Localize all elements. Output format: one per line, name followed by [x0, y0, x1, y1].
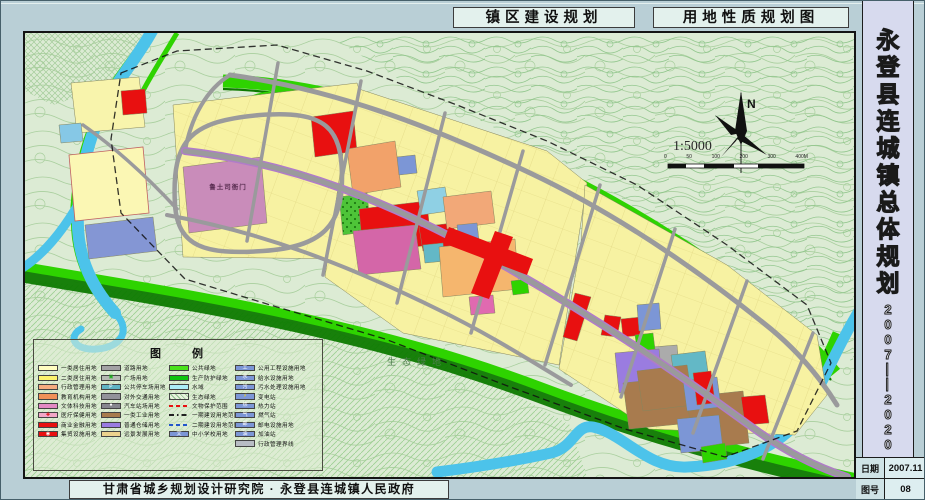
legend-swatch: 文	[169, 431, 189, 437]
legend-swatch: 水	[235, 375, 255, 381]
legend-swatch: 热	[235, 403, 255, 409]
info-row: 日期2007.11	[856, 458, 925, 479]
historic-site-label: 鲁土司衙门	[189, 181, 267, 191]
legend-item-label: 生产防护绿地	[192, 374, 228, 382]
legend-item-label: 商业金融用地	[61, 421, 97, 429]
legend-columns: 一类居住用地二类居住用地行政管理用地教育机构用地文体科技用地✚医疗保健用地商业金…	[38, 365, 319, 447]
legend-swatch	[169, 384, 189, 390]
legend-item-label: 文体科技用地	[61, 402, 97, 410]
vertical-year-char: 0	[863, 317, 913, 332]
legend-swatch-glyph: ▣	[109, 375, 114, 380]
legend-item-label: 汽车站场用地	[124, 402, 160, 410]
legend-item-label: 集贸设施用地	[61, 430, 97, 438]
vertical-title: 永登县连城镇总体规划	[863, 27, 913, 297]
legend-swatch: ▣	[101, 375, 121, 381]
credit-box: 甘肃省城乡规划设计研究院 · 永登县连城镇人民政府	[69, 480, 449, 499]
legend-item: 一类居住用地	[38, 365, 97, 372]
vertical-title-char: 城	[863, 135, 913, 162]
vertical-title-char: 规	[863, 243, 913, 270]
legend-item-label: 加油站	[258, 430, 276, 438]
legend-item: 水给水设施用地	[235, 374, 319, 381]
legend-item-label: 变电站	[258, 393, 276, 401]
legend-swatch	[101, 365, 121, 371]
scale-tick-labels: 050100200300400M	[664, 154, 808, 160]
top-divider	[1, 3, 924, 4]
legend-item-label: 一类工业用地	[124, 411, 160, 419]
legend-swatch	[38, 422, 58, 428]
legend-swatch: 污	[235, 384, 255, 390]
legend-title: 图 例	[48, 345, 319, 361]
legend-item: 热热力站	[235, 403, 319, 410]
vertical-year-char: 0	[863, 437, 913, 452]
legend-item: ◉集贸设施用地	[38, 431, 97, 438]
scale-text: 1:5000	[673, 139, 712, 155]
legend-swatch	[101, 393, 121, 399]
scale-tick: 300	[767, 154, 775, 160]
legend-swatch: P	[101, 384, 121, 390]
legend-item-label: 行政管理用地	[61, 383, 97, 391]
legend-swatch: ⚡	[235, 393, 255, 399]
legend-column: 道路用地▣广场用地P公共停车场用地对外交通用地●汽车站场用地一类工业用地普通仓储…	[101, 365, 165, 447]
vertical-years: 2007——2020	[863, 302, 913, 452]
legend-item: 生态绿地	[169, 393, 231, 400]
legend-item: P公共停车场用地	[101, 384, 165, 391]
legend-swatch	[169, 424, 189, 426]
info-label: 日期	[856, 458, 885, 478]
scale-tick: 400M	[795, 154, 808, 160]
legend-swatch	[38, 375, 58, 381]
legend-item: 公共绿地	[169, 365, 231, 372]
scale-tick: 200	[740, 154, 748, 160]
legend-item: 文体科技用地	[38, 403, 97, 410]
legend-item: 文中小学校用地	[169, 431, 231, 438]
legend-item-label: 广场用地	[124, 374, 148, 382]
legend-item-label: 一类居住用地	[61, 364, 97, 372]
legend-item-label: 教育机构用地	[61, 393, 97, 401]
legend-item-label: 远景发展用地	[124, 430, 160, 438]
legend-item-label: 生态绿地	[192, 393, 216, 401]
legend-swatch: ●	[101, 403, 121, 409]
legend-item: 油加油站	[235, 431, 319, 438]
right-sidebar: 永登县连城镇总体规划 2007——2020 日期2007.11图号08	[856, 1, 925, 500]
legend-swatch-glyph: 气	[242, 413, 247, 418]
legend-swatch-glyph: 热	[242, 403, 247, 408]
legend-item: ▣广场用地	[101, 374, 165, 381]
legend-item: 工公用工程设施用地	[235, 365, 319, 372]
legend-item-label: 公共绿地	[192, 364, 216, 372]
info-value: 2007.11	[885, 458, 925, 478]
legend-swatch	[101, 412, 121, 418]
legend-item: 道路用地	[101, 365, 165, 372]
scale-bar	[668, 164, 804, 168]
vertical-title-char: 总	[863, 189, 913, 216]
vertical-title-char: 连	[863, 108, 913, 135]
legend-item-label: 道路用地	[124, 364, 148, 372]
vertical-title-char: 镇	[863, 162, 913, 189]
legend-swatch	[38, 393, 58, 399]
legend-item-label: 燃气站	[258, 411, 276, 419]
legend-item: 教育机构用地	[38, 393, 97, 400]
legend-item: 污污水处理设施用地	[235, 384, 319, 391]
legend-column: 工公用工程设施用地水给水设施用地污污水处理设施用地⚡变电站热热力站气燃气站邮邮电…	[235, 365, 319, 447]
legend-item: 生产防护绿地	[169, 374, 231, 381]
legend-swatch	[38, 365, 58, 371]
legend-item: 文物保护范围	[169, 403, 231, 410]
legend-swatch	[38, 384, 58, 390]
legend-swatch-glyph: ✚	[46, 413, 50, 418]
legend-swatch-glyph: 污	[242, 385, 247, 390]
vertical-year-char: —	[881, 360, 896, 410]
vertical-title-char: 划	[863, 270, 913, 297]
legend-item-label: 邮电设施用地	[258, 421, 294, 429]
legend-swatch	[38, 403, 58, 409]
scale-tick: 100	[712, 154, 720, 160]
scale-tick: 50	[686, 154, 692, 160]
drawing-title-strip: 永登县连城镇总体规划 2007——2020	[862, 1, 914, 457]
legend-swatch-glyph: ●	[109, 403, 112, 408]
drawing-info-table: 日期2007.11图号08	[856, 457, 925, 500]
legend-item-label: 水域	[192, 383, 204, 391]
legend-swatch-glyph: ◉	[46, 432, 50, 437]
info-label: 图号	[856, 479, 885, 499]
legend-item: 行政管理用地	[38, 384, 97, 391]
legend-item-label: 热力站	[258, 402, 276, 410]
legend-item-label: 公共停车场用地	[124, 383, 166, 391]
info-value: 08	[885, 479, 925, 499]
legend-item: 二类居住用地	[38, 374, 97, 381]
legend-swatch: 油	[235, 431, 255, 437]
vertical-title-char: 永	[863, 27, 913, 54]
legend-swatch	[101, 431, 121, 437]
planning-map-panel: 鲁土司衙门 生态绿地 N 1:5000 050100200300400M 图 例…	[23, 31, 856, 479]
legend-swatch	[101, 422, 121, 428]
legend-item-label: 公用工程设施用地	[258, 364, 306, 372]
legend-item: ✚医疗保健用地	[38, 412, 97, 419]
info-row: 图号08	[856, 479, 925, 500]
vertical-title-char: 体	[863, 216, 913, 243]
legend-item-label: 二类居住用地	[61, 374, 97, 382]
scale-tick: 0	[664, 154, 667, 160]
legend-item: ●汽车站场用地	[101, 403, 165, 410]
legend-swatch-glyph: P	[109, 385, 112, 390]
page: 镇区建设规划 用地性质规划图	[0, 0, 925, 500]
legend-item: 普通仓储用地	[101, 421, 165, 428]
legend-item-label: 医疗保健用地	[61, 411, 97, 419]
legend-item-label: 二期建设用地范围	[192, 421, 240, 429]
legend-item: 水域	[169, 384, 231, 391]
legend-swatch-glyph: 邮	[242, 422, 247, 427]
legend-item-label: 对外交通用地	[124, 393, 160, 401]
legend-swatch	[235, 440, 255, 446]
legend-item: 二期建设用地范围	[169, 421, 231, 428]
legend-item: 邮邮电设施用地	[235, 421, 319, 428]
page-title-box-2: 用地性质规划图	[653, 7, 849, 28]
legend-swatch-glyph: 文	[176, 432, 181, 437]
legend-item: 行政管理界线	[235, 440, 319, 447]
legend-item-label: 一期建设用地范围	[192, 411, 240, 419]
legend-swatch-glyph: 水	[242, 375, 247, 380]
vertical-year-char: 2	[863, 422, 913, 437]
legend-swatch: 气	[235, 412, 255, 418]
legend-swatch	[169, 365, 189, 371]
legend-column: 公共绿地生产防护绿地水域生态绿地文物保护范围一期建设用地范围二期建设用地范围文中…	[169, 365, 231, 447]
legend-item: ⚡变电站	[235, 393, 319, 400]
legend-item-label: 普通仓储用地	[124, 421, 160, 429]
legend-swatch	[169, 414, 189, 416]
legend-item-label: 污水处理设施用地	[258, 383, 306, 391]
legend-item: 远景发展用地	[101, 431, 165, 438]
legend-swatch: 邮	[235, 422, 255, 428]
legend-item: 一类工业用地	[101, 412, 165, 419]
legend-swatch	[169, 375, 189, 381]
vertical-title-char: 县	[863, 81, 913, 108]
vertical-year-char: 2	[863, 302, 913, 317]
legend-swatch-glyph: 工	[242, 366, 247, 371]
legend-swatch	[169, 393, 189, 399]
north-label: N	[747, 97, 756, 111]
legend-panel: 图 例 一类居住用地二类居住用地行政管理用地教育机构用地文体科技用地✚医疗保健用…	[33, 339, 323, 471]
legend-column: 一类居住用地二类居住用地行政管理用地教育机构用地文体科技用地✚医疗保健用地商业金…	[38, 365, 97, 447]
legend-item-label: 文物保护范围	[192, 402, 228, 410]
legend-item-label: 给水设施用地	[258, 374, 294, 382]
legend-item-label: 中小学校用地	[192, 430, 228, 438]
legend-swatch	[169, 405, 189, 407]
legend-item: 商业金融用地	[38, 421, 97, 428]
legend-swatch-glyph: 油	[242, 432, 247, 437]
legend-swatch: ✚	[38, 412, 58, 418]
vertical-title-char: 登	[863, 54, 913, 81]
legend-item: 对外交通用地	[101, 393, 165, 400]
legend-swatch-glyph: ⚡	[243, 394, 247, 399]
page-title-box-1: 镇区建设规划	[453, 7, 635, 28]
legend-swatch: 工	[235, 365, 255, 371]
legend-item-label: 行政管理界线	[258, 440, 294, 448]
legend-item: 一期建设用地范围	[169, 412, 231, 419]
legend-item: 气燃气站	[235, 412, 319, 419]
eco-green-label: 生态绿地	[387, 355, 447, 368]
legend-swatch: ◉	[38, 431, 58, 437]
